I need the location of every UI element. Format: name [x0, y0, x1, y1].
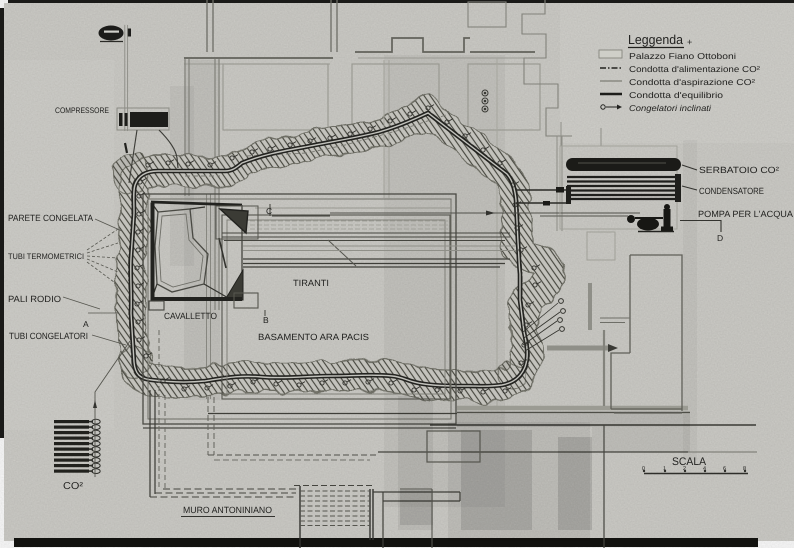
svg-text:Palazzo Fiano Ottoboni: Palazzo Fiano Ottoboni	[629, 51, 736, 61]
svg-text:D: D	[717, 233, 723, 243]
svg-text:Condotta d'aspirazione CO²: Condotta d'aspirazione CO²	[629, 77, 755, 87]
svg-text:B: B	[263, 315, 269, 325]
svg-text:SCALA: SCALA	[672, 456, 707, 468]
svg-text:Congelatori inclinati: Congelatori inclinati	[629, 103, 712, 113]
svg-text:BASAMENTO ARA PACIS: BASAMENTO ARA PACIS	[258, 332, 369, 342]
svg-text:Condotta d'equilibrio: Condotta d'equilibrio	[629, 90, 723, 100]
svg-text:CO²: CO²	[63, 481, 84, 492]
svg-text:POMPA PER L'ACQUA: POMPA PER L'ACQUA	[698, 209, 793, 219]
svg-text:CONDENSATORE: CONDENSATORE	[699, 186, 764, 196]
svg-text:A: A	[83, 319, 89, 329]
svg-text:TUBI CONGELATORI: TUBI CONGELATORI	[9, 331, 88, 341]
svg-text:TIRANTI: TIRANTI	[293, 278, 329, 288]
svg-text:CAVALLETTO: CAVALLETTO	[164, 311, 217, 321]
svg-text:C: C	[266, 206, 272, 216]
svg-text:+: +	[687, 37, 692, 47]
svg-text:SERBATOIO CO²: SERBATOIO CO²	[699, 165, 779, 175]
svg-text:PARETE CONGELATA: PARETE CONGELATA	[8, 213, 93, 223]
svg-text:TUBI TERMOMETRICI: TUBI TERMOMETRICI	[8, 252, 84, 261]
svg-text:COMPRESSORE: COMPRESSORE	[55, 106, 109, 115]
svg-text:Leggenda: Leggenda	[628, 32, 684, 47]
svg-text:Condotta d'alimentazione CO²: Condotta d'alimentazione CO²	[629, 64, 760, 74]
svg-text:MURO ANTONINIANO: MURO ANTONINIANO	[183, 505, 272, 515]
svg-text:PALI RODIO: PALI RODIO	[8, 294, 61, 304]
